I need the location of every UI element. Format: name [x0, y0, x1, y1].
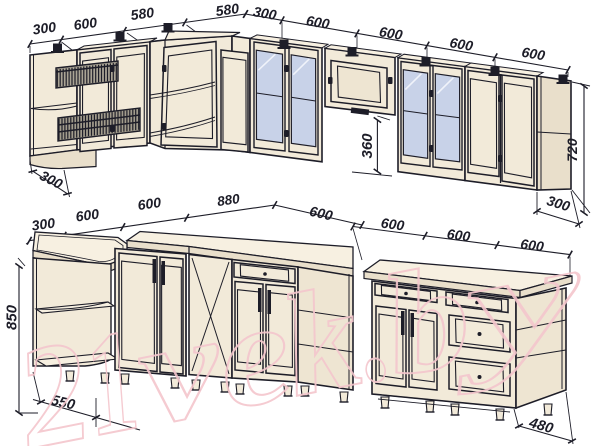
svg-text:360: 360	[359, 133, 376, 159]
svg-text:880: 880	[216, 191, 241, 209]
svg-text:600: 600	[380, 215, 405, 234]
svg-text:300: 300	[32, 18, 58, 37]
svg-text:300: 300	[31, 214, 57, 233]
svg-text:720: 720	[564, 138, 580, 162]
svg-text:600: 600	[75, 205, 101, 224]
svg-text:580: 580	[130, 4, 156, 23]
svg-text:600: 600	[137, 194, 163, 213]
svg-text:580: 580	[215, 0, 241, 19]
svg-text:600: 600	[73, 14, 99, 33]
